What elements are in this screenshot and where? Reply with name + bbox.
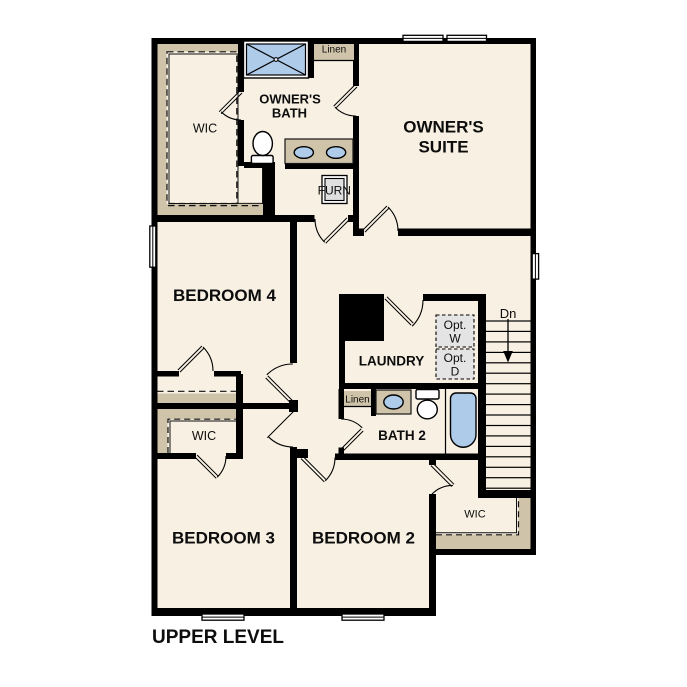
svg-text:Dn: Dn	[500, 306, 517, 321]
svg-text:OWNER'S: OWNER'S	[259, 92, 321, 107]
svg-text:SUITE: SUITE	[418, 138, 468, 157]
svg-text:BATH: BATH	[272, 106, 307, 121]
svg-text:WIC: WIC	[193, 122, 217, 136]
svg-text:WIC: WIC	[464, 509, 485, 521]
svg-text:BEDROOM 2: BEDROOM 2	[312, 529, 415, 548]
svg-text:WIC: WIC	[192, 429, 216, 443]
svg-text:D: D	[451, 365, 460, 379]
svg-text:Opt.: Opt.	[444, 318, 467, 332]
svg-text:Linen: Linen	[322, 45, 346, 56]
svg-text:LAUNDRY: LAUNDRY	[359, 354, 425, 369]
svg-text:BEDROOM 4: BEDROOM 4	[173, 286, 277, 305]
svg-text:Opt.: Opt.	[444, 351, 467, 365]
svg-text:UPPER LEVEL: UPPER LEVEL	[152, 627, 284, 648]
svg-text:W: W	[449, 332, 461, 346]
svg-text:Linen: Linen	[345, 395, 369, 406]
svg-text:OWNER'S: OWNER'S	[403, 118, 484, 137]
svg-text:FURN: FURN	[318, 183, 351, 197]
svg-text:BEDROOM 3: BEDROOM 3	[172, 529, 275, 548]
svg-text:BATH 2: BATH 2	[378, 428, 426, 443]
